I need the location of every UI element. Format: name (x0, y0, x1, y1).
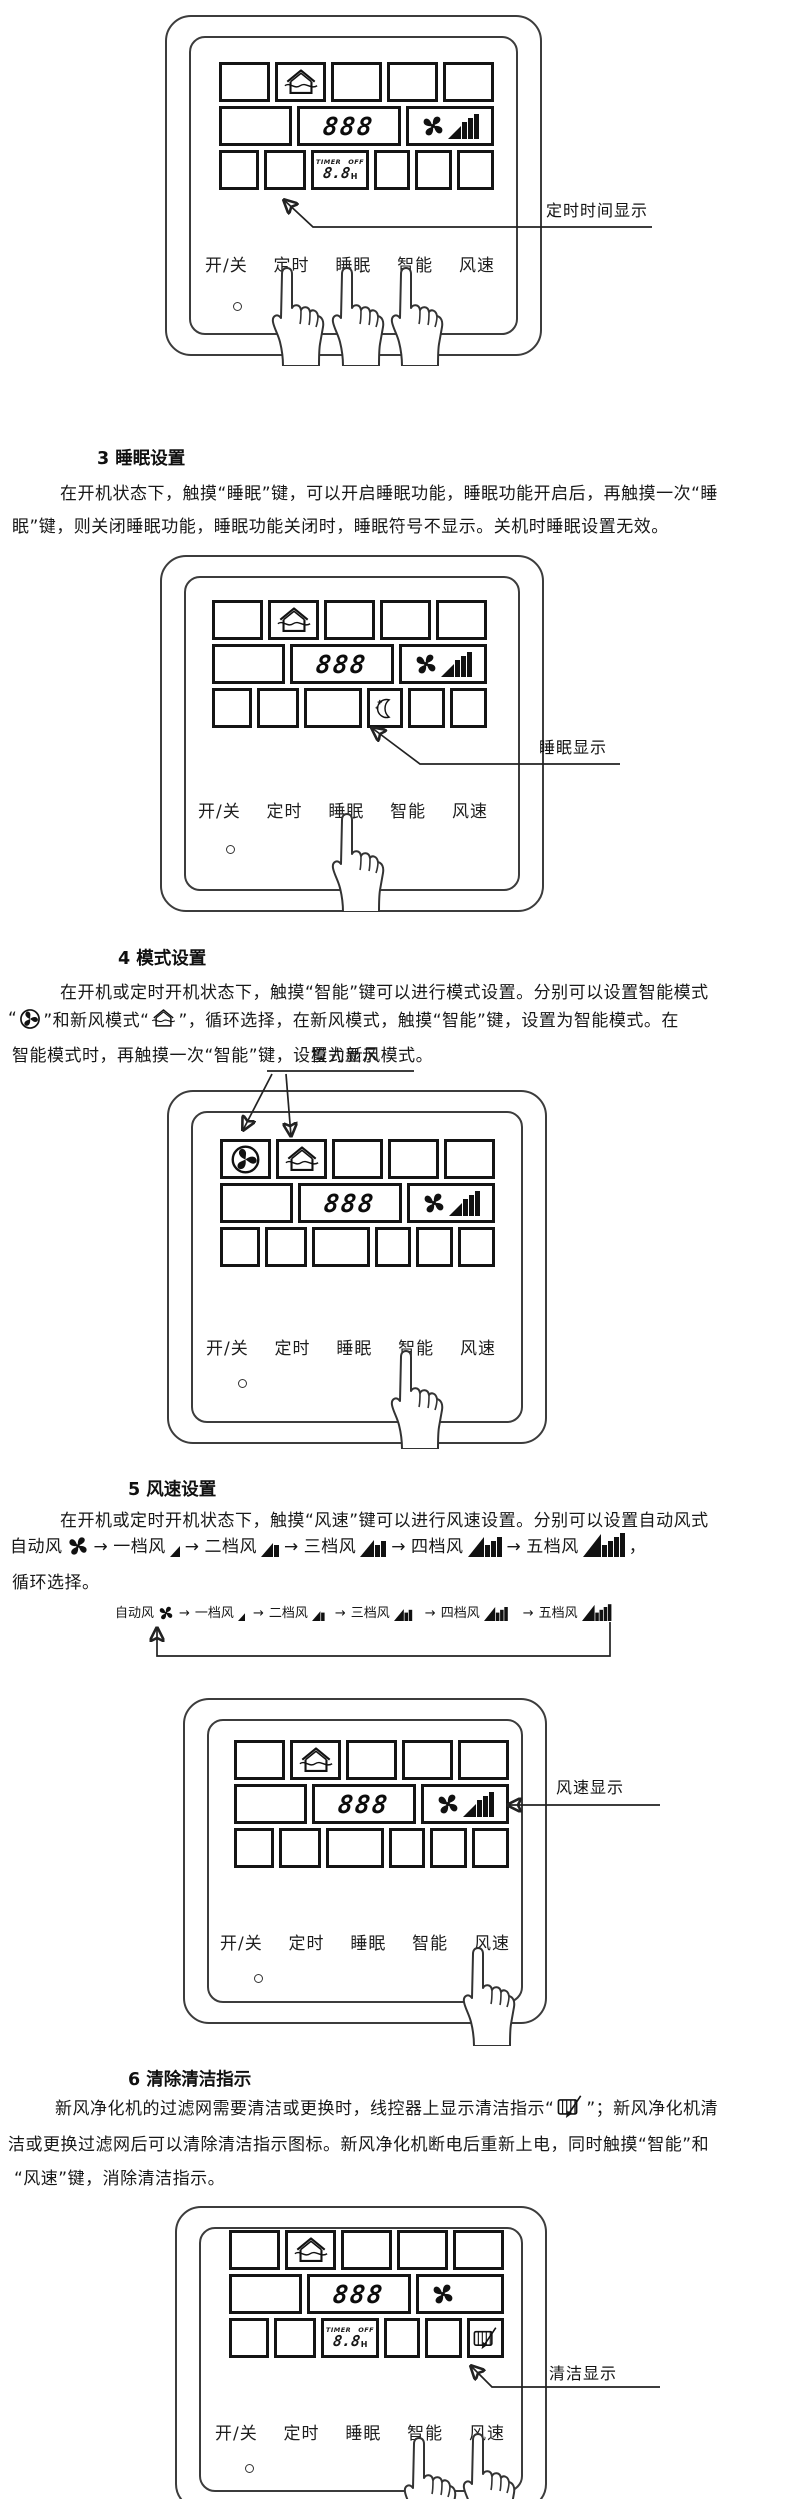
temperature-digits: 888 (315, 650, 370, 679)
text: ”和新风模式“ (43, 1006, 149, 1031)
manual-page: 888 TIMEROFF 8.8H 开/关 定时 睡眠 智能 风速 (0, 0, 790, 2499)
indicator-dot (226, 845, 235, 854)
power-button: 开/关 (206, 1334, 249, 1359)
lcd-cell (388, 1139, 439, 1179)
section3-heading: 3 睡眠设置 (97, 445, 185, 470)
lcd-display: 888 (234, 1740, 509, 1868)
fan-bars-icon (394, 1609, 412, 1621)
lcd-cell (415, 150, 452, 190)
sleep-button: 睡眠 (350, 1929, 386, 1954)
lcd-cell (416, 1227, 453, 1267)
arrow-right-icon: → (390, 1537, 407, 1557)
lcd-cell (450, 688, 487, 728)
fan-speed-button: 风速 (452, 797, 488, 822)
lcd-cell (219, 150, 259, 190)
lcd-cell (234, 1828, 274, 1868)
hours-unit: H (351, 173, 358, 181)
power-button: 开/关 (198, 797, 241, 822)
lcd-display: 888 (220, 1139, 495, 1267)
fan-speed-cell (421, 1784, 509, 1824)
fan-icon (436, 1792, 460, 1816)
indicator-dot (238, 1379, 247, 1388)
lcd-cell (384, 2318, 420, 2358)
fan-bars-icon (582, 1604, 611, 1621)
lcd-cell (453, 2230, 504, 2270)
fan-level-label: 二档风 (269, 1602, 308, 1621)
lcd-cell (234, 1740, 285, 1780)
timer-button: 定时 (275, 1334, 311, 1359)
fan-icon (431, 2282, 455, 2306)
arrow-right-icon: → (506, 1537, 523, 1557)
fan-level-label: 四档风 (411, 1532, 464, 1557)
filter-clean-icon (556, 2094, 584, 2119)
lcd-cell (229, 2230, 280, 2270)
lcd-cell (326, 1828, 384, 1868)
sleep-button: 睡眠 (345, 2419, 381, 2444)
lcd-cell (219, 106, 292, 146)
fan-bars-icon (449, 1191, 480, 1216)
lcd-cell (332, 1139, 383, 1179)
fan-level-label: 二档风 (205, 1532, 258, 1557)
arrow-right-icon: → (252, 1606, 265, 1621)
timer-cell: TIMEROFF 8.8H (311, 150, 369, 190)
smart-mode-icon (19, 1008, 41, 1030)
lcd-cell (257, 688, 299, 728)
pointing-hand-timer (271, 266, 329, 366)
pointing-hand-sleep (331, 812, 389, 912)
timer-hours-digits: 8.8 (332, 2334, 361, 2349)
lcd-cell (212, 688, 252, 728)
text: ”；新风净化机清 (586, 2094, 718, 2119)
arrow-right-icon: → (283, 1537, 300, 1557)
lcd-cell (389, 1828, 425, 1868)
pointing-hand-fanspeed (462, 1946, 520, 2046)
indicator-dot (233, 302, 242, 311)
fan-bars-icon (441, 652, 472, 677)
section3-line2: 眠”键，则关闭睡眠功能，睡眠功能关闭时，睡眠符号不显示。关机时睡眠设置无效。 (12, 512, 669, 537)
smart-button: 智能 (390, 797, 426, 822)
fan-bars-icon (238, 1613, 245, 1621)
indicator-dot (245, 2464, 254, 2473)
smart-mode-icon (230, 1144, 261, 1175)
arrow-right-icon: → (522, 1606, 535, 1621)
lcd-cell (387, 62, 438, 102)
lcd-cell (425, 2318, 462, 2358)
section4-line3: 智能模式时，再触摸一次“智能”键，设置为新风模式。 (12, 1041, 433, 1066)
button-row: 开/关 定时 睡眠 智能 风速 (206, 1334, 496, 1359)
fan-bars-icon (261, 1543, 279, 1557)
smart-button: 智能 (412, 1929, 448, 1954)
fresh-air-mode-icon (283, 68, 319, 97)
fan-bars-icon (312, 1611, 325, 1621)
lcd-display: 888 TIMEROFF 8.8H (229, 2230, 504, 2358)
filter-clean-icon (472, 2326, 499, 2350)
sleep-moon-icon (374, 697, 397, 720)
lcd-cell (220, 1183, 293, 1223)
fan-bars-icon (583, 1533, 625, 1557)
annotation-fan-display: 风速显示 (556, 1774, 624, 1798)
fan-icon (414, 652, 438, 676)
temperature-digits: 888 (337, 1790, 392, 1819)
annotation-clean-display: 清洁显示 (549, 2360, 617, 2384)
fan-level-label: 四档风 (441, 1602, 480, 1621)
lcd-cell: 888 (298, 1183, 402, 1223)
lcd-cell (436, 600, 487, 640)
lcd-cell (402, 1740, 453, 1780)
fan-level-label: 一档风 (113, 1532, 166, 1557)
arrow-right-icon: → (184, 1537, 201, 1557)
arrow-right-icon: → (334, 1606, 347, 1621)
lcd-cell (444, 1139, 495, 1179)
lcd-cell (374, 150, 410, 190)
sleep-button: 睡眠 (336, 1334, 372, 1359)
timer-button: 定时 (289, 1929, 325, 1954)
section4-heading: 4 模式设置 (118, 945, 206, 970)
lcd-cell (399, 644, 487, 684)
lcd-cell (375, 1227, 411, 1267)
lcd-cell (346, 1740, 397, 1780)
lcd-cell (290, 1740, 341, 1780)
temperature-digits: 888 (323, 1189, 378, 1218)
lcd-cell (408, 688, 445, 728)
section4-line2: “ ”和新风模式“ ”，循环选择，在新风模式，触摸“智能”键，设置为智能模式。在 (8, 1006, 679, 1031)
fresh-air-mode-icon (298, 1746, 334, 1775)
fan-speed-cycle-diagram: 自动风→一档风→二档风→三档风→四档风→五档风 (115, 1597, 624, 1621)
lcd-cell (443, 62, 494, 102)
timer-button: 定时 (284, 2419, 320, 2444)
quote: “ (8, 1009, 17, 1029)
lcd-cell: 888 (307, 2274, 411, 2314)
timer-hours-digits: 8.8 (322, 166, 351, 181)
lcd-cell (265, 1227, 307, 1267)
lcd-cell (457, 150, 494, 190)
controller-diagram-mode: 888 开/关 定时 睡眠 智能 风速 (167, 1090, 547, 1444)
lcd-cell (234, 1784, 307, 1824)
section6-line3: “风速”键，消除清洁指示。 (14, 2164, 225, 2189)
pointing-hand-fanspeed (462, 2432, 520, 2499)
lcd-cell (219, 62, 270, 102)
lcd-cell (407, 1183, 495, 1223)
lcd-cell (331, 62, 382, 102)
fan-level-label: 三档风 (351, 1602, 390, 1621)
lcd-cell: 888 (312, 1784, 416, 1824)
lcd-cell (380, 600, 431, 640)
lcd-cell (279, 1828, 321, 1868)
smart-mode-cell (220, 1139, 271, 1179)
clean-cell (467, 2318, 504, 2358)
lcd-cell (312, 1227, 370, 1267)
lcd-cell (324, 600, 375, 640)
section5-fan-sequence: 自动风→一档风→二档风→三档风→四档风→五档风， (10, 1532, 646, 1557)
fresh-air-mode-icon (276, 606, 312, 635)
fan-level-label: 三档风 (304, 1532, 357, 1557)
lcd-cell (430, 1828, 467, 1868)
fan-level-label: 自动风 (10, 1532, 63, 1557)
lcd-cell (341, 2230, 392, 2270)
text: 新风净化机的过滤网需要清洁或更换时，线控器上显示清洁指示“ (55, 2094, 554, 2119)
fan-icon (158, 1605, 174, 1621)
section6-heading: 6 清除清洁指示 (128, 2066, 251, 2091)
fan-bars-icon (448, 114, 479, 139)
fresh-air-mode-icon (151, 1008, 176, 1029)
lcd-cell (274, 2318, 316, 2358)
fan-speed-button: 风速 (460, 1334, 496, 1359)
fan-icon (422, 1191, 446, 1215)
fresh-air-mode-icon (293, 2236, 329, 2265)
fan-bars-icon (468, 1537, 502, 1557)
pointing-hand-smart (390, 266, 448, 366)
lcd-cell (229, 2318, 269, 2358)
arrow-right-icon: → (93, 1537, 110, 1557)
lcd-cell (212, 644, 285, 684)
fan-level-label: 五档风 (539, 1602, 578, 1621)
section4-line1: 在开机或定时开机状态下，触摸“智能”键可以进行模式设置。分别可以设置智能模式 (60, 978, 709, 1003)
fan-bars-icon (360, 1540, 386, 1557)
fan-icon (67, 1535, 89, 1557)
lcd-cell (458, 1740, 509, 1780)
fan-speed-button: 风速 (459, 251, 495, 276)
temperature-digits: 888 (322, 112, 377, 141)
power-button: 开/关 (205, 251, 248, 276)
hours-unit: H (361, 2341, 368, 2349)
lcd-cell (416, 2274, 504, 2314)
temperature-digits: 888 (332, 2280, 387, 2309)
section6-line2: 洁或更换过滤网后可以清除清洁指示图标。新风净化机断电后重新上电，同时触摸“智能”… (8, 2130, 709, 2155)
fan-level-label: 自动风 (115, 1602, 154, 1621)
lcd-cell (264, 150, 306, 190)
fan-bars-icon (463, 1792, 494, 1817)
lcd-cell: 888 (297, 106, 401, 146)
lcd-cell: 888 (290, 644, 394, 684)
lcd-cell (472, 1828, 509, 1868)
section6-line1: 新风净化机的过滤网需要清洁或更换时，线控器上显示清洁指示“ ”；新风净化机清 (55, 2094, 718, 2119)
power-button: 开/关 (220, 1929, 263, 1954)
section3-line1: 在开机状态下，触摸“睡眠”键，可以开启睡眠功能，睡眠功能开启后，再触摸一次“睡 (60, 479, 718, 504)
section5-line3: 循环选择。 (12, 1568, 100, 1593)
pointing-hand-smart (390, 1349, 448, 1449)
pointing-hand-smart (403, 2436, 461, 2499)
lcd-cell (220, 1227, 260, 1267)
comma: ， (629, 1532, 647, 1557)
fan-bars-icon (170, 1546, 180, 1557)
fan-icon (421, 114, 445, 138)
fan-bars-icon (484, 1607, 508, 1621)
lcd-display: 888 TIMEROFF 8.8H (219, 62, 494, 190)
arrow-right-icon: → (424, 1606, 437, 1621)
power-button: 开/关 (215, 2419, 258, 2444)
lcd-cell (285, 2230, 336, 2270)
fan-level-label: 一档风 (195, 1602, 234, 1621)
lcd-cell (276, 1139, 327, 1179)
indicator-dot (254, 1974, 263, 1983)
lcd-cell (275, 62, 326, 102)
section5-line1: 在开机或定时开机状态下，触摸“风速”键可以进行风速设置。分别可以设置自动风式 (60, 1506, 709, 1531)
lcd-cell (268, 600, 319, 640)
sleep-cell (367, 688, 403, 728)
lcd-cell (406, 106, 494, 146)
annotation-timer-display: 定时时间显示 (546, 197, 648, 221)
fan-level-label: 五档风 (526, 1532, 579, 1557)
lcd-cell (212, 600, 263, 640)
lcd-cell (458, 1227, 495, 1267)
timer-cell: TIMEROFF 8.8H (321, 2318, 379, 2358)
lcd-cell (229, 2274, 302, 2314)
fresh-air-mode-icon (284, 1145, 320, 1174)
arrow-right-icon: → (178, 1606, 191, 1621)
pointing-hand-sleep (331, 266, 389, 366)
lcd-display: 888 (212, 600, 487, 728)
lcd-cell (397, 2230, 448, 2270)
timer-button: 定时 (267, 797, 303, 822)
lcd-cell (304, 688, 362, 728)
annotation-sleep-display: 睡眠显示 (539, 734, 607, 758)
text: ”，循环选择，在新风模式，触摸“智能”键，设置为智能模式。在 (178, 1006, 678, 1031)
section5-heading: 5 风速设置 (128, 1476, 216, 1501)
